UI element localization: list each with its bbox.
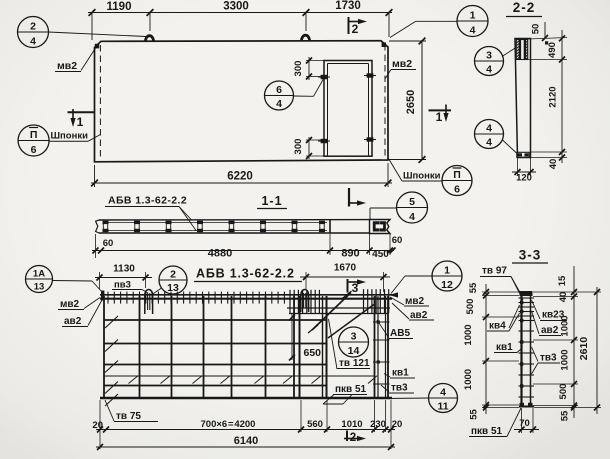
svg-text:60: 60 <box>392 235 403 246</box>
svg-text:2: 2 <box>170 269 176 281</box>
svg-text:6: 6 <box>276 84 282 96</box>
svg-text:14: 14 <box>348 345 360 357</box>
svg-text:4: 4 <box>486 136 492 148</box>
svg-text:1730: 1730 <box>335 0 361 12</box>
svg-text:490: 490 <box>547 42 558 58</box>
svg-text:500: 500 <box>465 299 476 315</box>
svg-text:1: 1 <box>436 110 443 124</box>
svg-text:3300: 3300 <box>223 1 249 13</box>
svg-text:11: 11 <box>437 400 448 412</box>
svg-text:ав2: ав2 <box>64 316 82 327</box>
svg-text:55: 55 <box>469 409 480 420</box>
svg-text:1000: 1000 <box>463 324 474 345</box>
svg-text:700×6 = 4200: 700×6 = 4200 <box>201 419 256 430</box>
svg-text:3: 3 <box>351 331 357 343</box>
svg-text:55: 55 <box>560 410 571 421</box>
svg-text:2: 2 <box>352 22 359 36</box>
svg-text:тв 75: тв 75 <box>116 411 141 422</box>
svg-text:4: 4 <box>276 98 282 110</box>
svg-text:60: 60 <box>103 238 114 249</box>
svg-text:6220: 6220 <box>227 171 253 183</box>
svg-text:1: 1 <box>444 265 450 277</box>
svg-text:2650: 2650 <box>405 90 417 114</box>
svg-text:6: 6 <box>31 144 37 156</box>
svg-text:тв 121: тв 121 <box>339 358 370 369</box>
svg-text:70: 70 <box>519 418 530 429</box>
svg-text:ав2: ав2 <box>410 310 428 321</box>
svg-text:1000: 1000 <box>463 369 474 390</box>
svg-text:АВ5: АВ5 <box>390 328 410 339</box>
svg-text:1010: 1010 <box>341 419 362 430</box>
svg-text:2: 2 <box>30 21 36 33</box>
svg-text:3: 3 <box>486 50 492 62</box>
svg-text:П: П <box>30 129 38 141</box>
svg-text:3-3: 3-3 <box>519 248 542 263</box>
svg-text:12: 12 <box>441 279 453 291</box>
svg-text:ав2: ав2 <box>541 325 559 336</box>
svg-text:кв1: кв1 <box>392 368 409 379</box>
svg-text:4: 4 <box>486 123 492 135</box>
svg-text:890: 890 <box>341 248 359 260</box>
svg-text:пв3: пв3 <box>114 280 131 291</box>
svg-text:40: 40 <box>558 292 569 303</box>
svg-text:6140: 6140 <box>234 435 258 447</box>
svg-text:Шпонки: Шпонки <box>51 131 89 142</box>
svg-text:120: 120 <box>516 173 532 184</box>
svg-text:2-2: 2-2 <box>513 0 536 15</box>
svg-text:6: 6 <box>454 183 460 195</box>
svg-text:1А: 1А <box>33 269 45 280</box>
svg-text:мв2: мв2 <box>60 299 80 310</box>
svg-text:2120: 2120 <box>548 86 559 107</box>
svg-text:1-1: 1-1 <box>261 194 282 208</box>
svg-text:тв3: тв3 <box>391 383 408 394</box>
svg-text:мв2: мв2 <box>392 58 412 70</box>
svg-text:300: 300 <box>293 61 304 77</box>
svg-text:мв2: мв2 <box>405 296 425 307</box>
svg-text:20: 20 <box>92 420 103 431</box>
svg-text:3: 3 <box>352 281 359 295</box>
svg-text:4: 4 <box>30 35 36 47</box>
svg-text:4: 4 <box>470 24 476 36</box>
svg-text:300: 300 <box>293 139 304 155</box>
svg-text:500: 500 <box>558 384 569 400</box>
svg-text:1670: 1670 <box>334 263 357 274</box>
svg-text:1000: 1000 <box>560 349 571 370</box>
svg-text:2610: 2610 <box>578 337 590 361</box>
svg-text:1130: 1130 <box>113 264 135 275</box>
svg-text:20: 20 <box>392 419 403 430</box>
svg-text:АБВ 1.3-62-2.2: АБВ 1.3-62-2.2 <box>196 267 295 281</box>
svg-text:Шпонки: Шпонки <box>403 171 441 182</box>
svg-text:пкв 51: пкв 51 <box>471 426 503 437</box>
svg-text:тв 97: тв 97 <box>482 266 507 277</box>
svg-text:4: 4 <box>409 211 415 223</box>
svg-text:4: 4 <box>440 387 446 399</box>
svg-text:450: 450 <box>372 249 389 260</box>
svg-text:П: П <box>453 169 461 181</box>
svg-text:мв2: мв2 <box>57 60 77 72</box>
svg-text:1190: 1190 <box>107 1 132 13</box>
svg-text:АБВ 1.3-62-2.2: АБВ 1.3-62-2.2 <box>108 195 187 207</box>
svg-text:50: 50 <box>531 24 542 35</box>
svg-text:13: 13 <box>34 281 45 292</box>
svg-text:кв4: кв4 <box>489 321 506 332</box>
svg-text:55: 55 <box>468 282 479 293</box>
svg-text:40: 40 <box>548 159 559 170</box>
svg-text:4: 4 <box>486 63 492 75</box>
svg-text:4880: 4880 <box>208 248 232 260</box>
svg-text:560: 560 <box>307 419 323 430</box>
svg-text:230: 230 <box>370 419 386 430</box>
svg-text:тв3: тв3 <box>540 353 557 364</box>
svg-text:15: 15 <box>557 275 568 286</box>
svg-text:5: 5 <box>409 196 415 208</box>
svg-text:пкв 51: пкв 51 <box>335 384 367 395</box>
svg-text:кв23: кв23 <box>542 310 565 321</box>
svg-text:кв1: кв1 <box>496 342 513 353</box>
svg-text:650: 650 <box>304 347 322 359</box>
svg-text:1: 1 <box>470 10 476 22</box>
svg-text:1: 1 <box>77 115 84 129</box>
